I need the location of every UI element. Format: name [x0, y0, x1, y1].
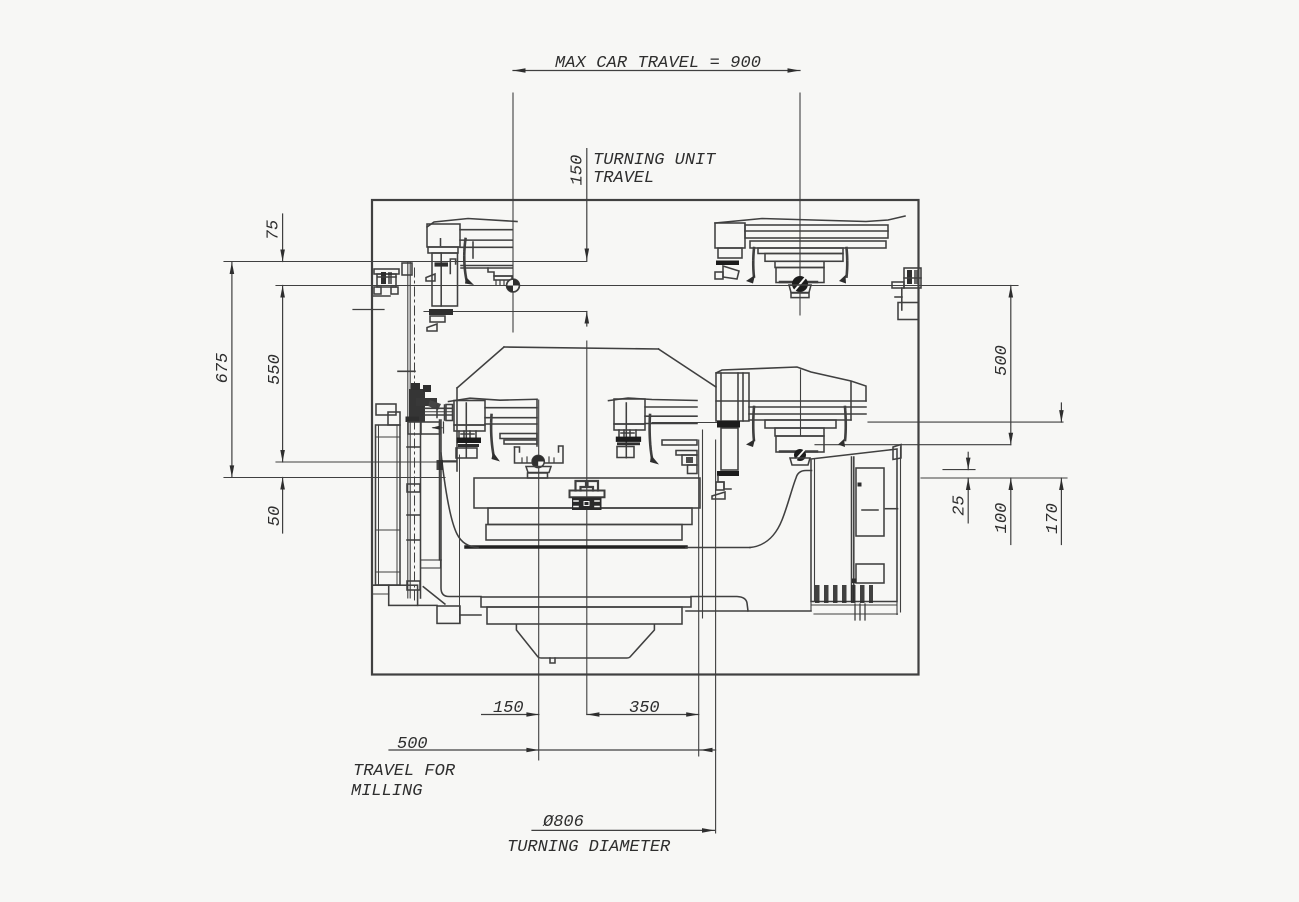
- svg-text:Ø806: Ø806: [542, 813, 584, 832]
- svg-text:350: 350: [629, 699, 660, 718]
- svg-text:75: 75: [265, 220, 284, 240]
- svg-text:500: 500: [993, 345, 1012, 376]
- svg-text:100: 100: [993, 503, 1012, 534]
- svg-text:MAX CAR TRAVEL = 900: MAX CAR TRAVEL = 900: [555, 54, 761, 73]
- svg-text:25: 25: [951, 495, 970, 515]
- svg-text:675: 675: [214, 353, 233, 384]
- svg-text:150: 150: [493, 699, 524, 718]
- svg-text:500: 500: [397, 735, 428, 754]
- svg-text:MILLING: MILLING: [351, 782, 422, 801]
- svg-text:170: 170: [1044, 503, 1063, 534]
- svg-text:TRAVEL: TRAVEL: [593, 169, 654, 188]
- svg-text:TURNING UNIT: TURNING UNIT: [593, 151, 716, 170]
- svg-text:50: 50: [266, 506, 285, 526]
- svg-text:TURNING DIAMETER: TURNING DIAMETER: [507, 838, 671, 857]
- svg-text:150: 150: [569, 155, 588, 186]
- svg-text:550: 550: [266, 354, 285, 385]
- svg-text:TRAVEL FOR: TRAVEL FOR: [353, 762, 456, 781]
